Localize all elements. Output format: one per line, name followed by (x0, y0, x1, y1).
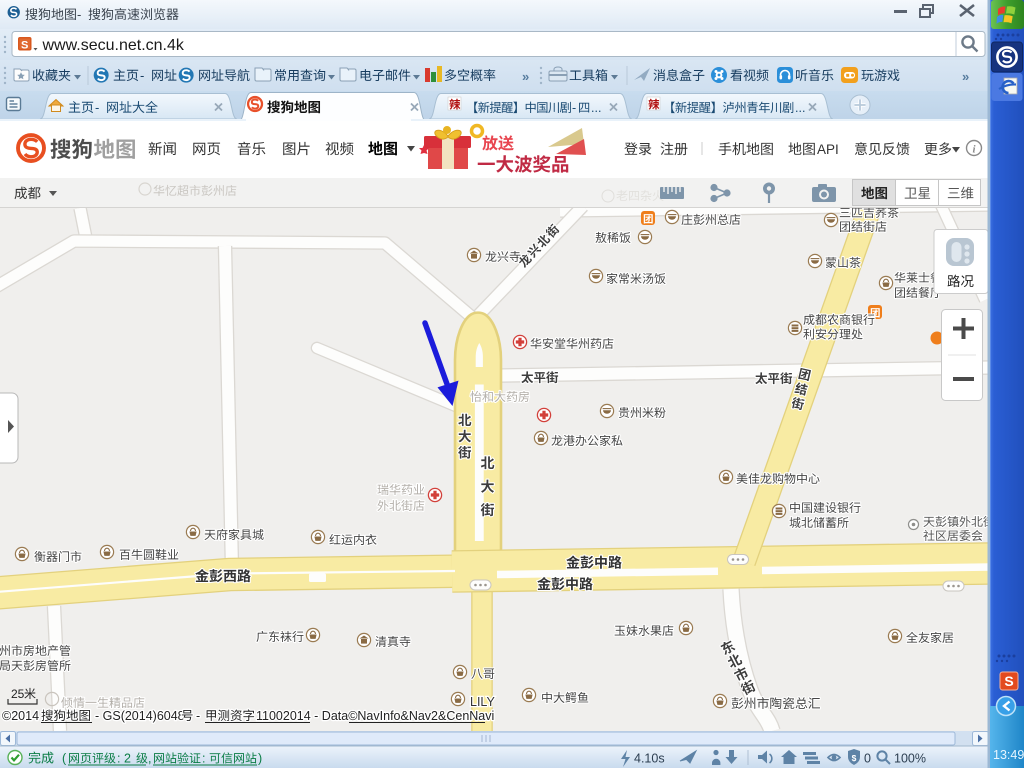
svg-text:13:49: 13:49 (993, 748, 1024, 762)
svg-text:-: - (572, 101, 576, 115)
svg-text:,: , (148, 752, 151, 766)
svg-text::: : (202, 752, 205, 766)
svg-text:...: ... (795, 101, 805, 115)
svg-text:100%: 100% (894, 752, 926, 766)
svg-text:11002014 - Data©NavInfo&Nav2&C: 11002014 - Data©NavInfo&Nav2&CenNavi (256, 709, 494, 723)
svg-text:0: 0 (864, 752, 871, 766)
svg-text:»: » (962, 69, 969, 84)
svg-text:- GS(2014)6048: - GS(2014)6048 (95, 709, 185, 723)
svg-text:-: - (196, 709, 200, 723)
svg-text:www.secu.net.cn.4k: www.secu.net.cn.4k (42, 37, 185, 54)
svg-text:S: S (21, 39, 28, 51)
svg-text:©2014: ©2014 (2, 709, 39, 723)
svg-text:-: - (77, 7, 81, 22)
svg-text:-: - (140, 68, 144, 83)
svg-text:...: ... (591, 101, 601, 115)
svg-text:): ) (258, 752, 262, 766)
svg-text:: 2: : 2 (117, 752, 131, 766)
svg-text:25: 25 (11, 687, 25, 701)
svg-text:$: $ (852, 753, 857, 763)
svg-text:LILY: LILY (470, 695, 495, 709)
svg-text:»: » (522, 69, 529, 84)
svg-text:S: S (1004, 673, 1013, 689)
svg-text:4.10s: 4.10s (634, 752, 665, 766)
svg-text:API: API (817, 142, 839, 157)
svg-text:-: - (95, 100, 99, 115)
